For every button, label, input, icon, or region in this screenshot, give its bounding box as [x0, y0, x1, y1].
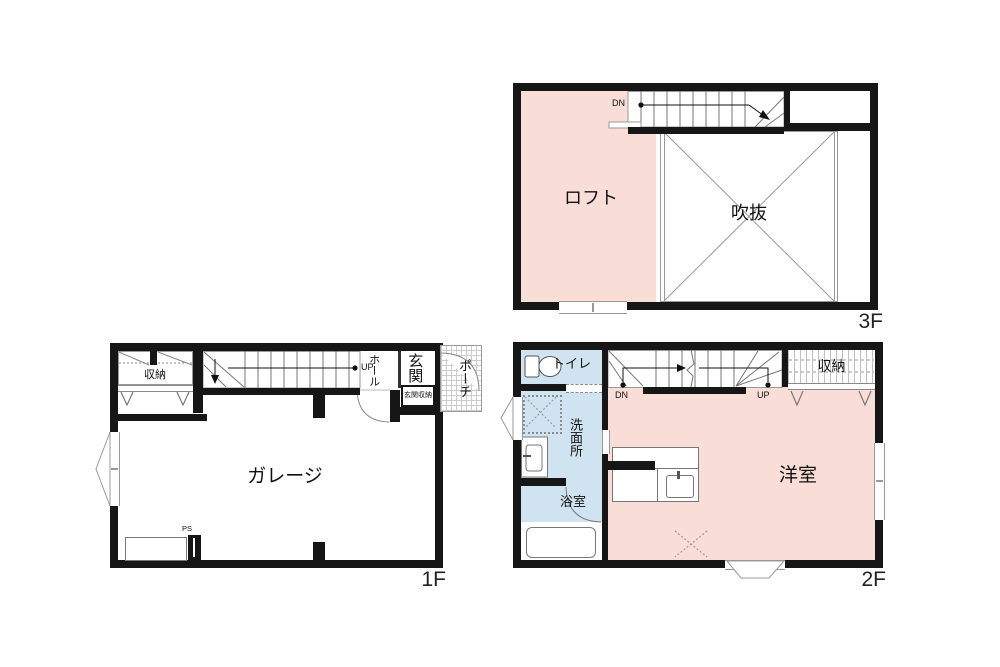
washroom-door-opening	[602, 430, 610, 454]
window-3f-bottom	[559, 301, 627, 314]
wall-toilet-bottom	[521, 384, 566, 391]
wall-under-stair-3f	[628, 127, 784, 134]
window-2f-left	[512, 397, 523, 440]
room-label-storage-2f: 収納	[791, 358, 872, 374]
floor-3f: DN ロフト 吹抜	[513, 83, 878, 310]
room-label-loft: ロフト	[546, 188, 636, 209]
wall-stub-garage-bottom	[313, 542, 325, 560]
kitchen-counter-sink-unit	[657, 468, 699, 502]
wall-closet-bottom-3f	[784, 123, 870, 131]
wall-under-stair-2f	[643, 387, 746, 394]
floor-2f: トイレ 洗面所 浴室 収納 洋室 DN UP	[513, 342, 883, 568]
window-1f-left	[109, 432, 120, 506]
floor-label-2f: 2F	[838, 568, 886, 592]
floor-label-1f: 1F	[398, 568, 446, 592]
wall-kitchen-stub	[607, 461, 655, 470]
kitchen-counter-left	[612, 468, 659, 502]
garage-sink-counter	[125, 537, 187, 561]
wall-under-entrance-storage	[395, 407, 435, 415]
wall-sanitary-right	[602, 350, 608, 560]
wall-storage-divider-1f	[150, 351, 157, 365]
storage-door-2f	[788, 383, 875, 390]
room-label-bathroom: 浴室	[545, 495, 601, 510]
toilet-door	[566, 384, 602, 393]
wall-door-stub-1f	[390, 390, 400, 422]
room-label-entrance-storage: 玄関収納	[404, 392, 432, 400]
floor-label-3f: 3F	[835, 310, 883, 334]
ps-label: PS	[182, 525, 192, 534]
room-label-hall: ホール	[367, 352, 380, 388]
stair-up-label-2f: UP	[757, 390, 770, 400]
stair-dn-label-2f: DN	[615, 390, 628, 400]
entrance-storage: 玄関収納	[401, 385, 435, 407]
wall-hall-entrance	[398, 351, 401, 388]
washer-space	[523, 395, 562, 434]
stair-dn-label-3f: DN	[601, 98, 625, 108]
room-label-porch: ポーチ	[456, 350, 471, 406]
room-label-storage-1f: 収納	[123, 369, 187, 382]
floor-1f-linework	[118, 351, 435, 560]
ps-shaft	[188, 535, 201, 560]
bathtub	[526, 527, 596, 558]
wall-washroom-bath	[521, 478, 566, 486]
window-2f-right	[874, 443, 885, 520]
floorplan-canvas: DN ロフト 吹抜 3F	[0, 0, 1000, 667]
wall-storage-right-1f	[193, 351, 203, 413]
wall-under-storage-1f	[110, 414, 207, 421]
storage-door-1f	[118, 385, 193, 392]
wall-stub-garage-top	[313, 392, 325, 418]
room-label-void: 吹抜	[704, 203, 794, 224]
wall-under-stair-1f	[203, 388, 360, 395]
wall-stair-storage-2f	[782, 350, 788, 387]
room-label-garage: ガレージ	[223, 466, 347, 488]
room-label-entrance: 玄関	[406, 352, 423, 384]
floor-1f: 玄関収納 収納 UP ホール 玄関 ガレージ PS	[110, 343, 443, 568]
room-label-western: 洋室	[756, 465, 840, 487]
window-2f-bottom	[725, 560, 785, 570]
room-label-toilet: トイレ	[552, 357, 591, 372]
room-label-washroom: 洗面所	[567, 407, 582, 467]
